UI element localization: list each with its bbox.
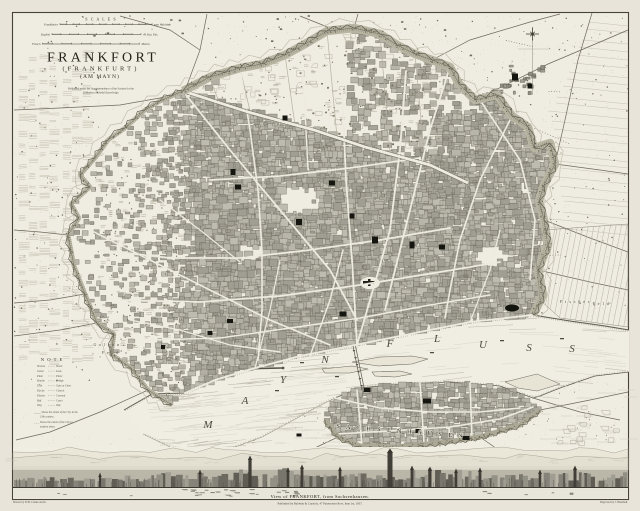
- svg-text:M: M: [202, 419, 213, 431]
- svg-text:S C A L E S: S C A L E S: [85, 17, 116, 22]
- svg-text:13th century.: 13th century.: [40, 416, 54, 419]
- svg-text:e: e: [598, 301, 600, 306]
- svg-text:S: S: [569, 343, 575, 355]
- svg-text:Gate or Door: Gate or Door: [56, 385, 72, 388]
- svg-text:Platz: Platz: [36, 375, 44, 378]
- svg-text:Way: Way: [56, 404, 61, 407]
- svg-text:Strasse: Strasse: [37, 365, 46, 368]
- svg-text:FRANKFORT: FRANKFORT: [47, 51, 159, 66]
- svg-text:u: u: [99, 342, 101, 347]
- svg-text:zum Wahlstab: zum Wahlstab: [153, 23, 171, 27]
- svg-text:N O T E: N O T E: [41, 357, 64, 362]
- svg-text:Frankfurter: Frankfurter: [43, 23, 59, 27]
- svg-text:Kirche: Kirche: [36, 390, 45, 393]
- svg-text:Published under the Superinten: Published under the Superintendence of t…: [68, 88, 135, 91]
- svg-text:e: e: [583, 299, 585, 304]
- svg-text:Weg: Weg: [37, 404, 42, 407]
- svg-text:S: S: [377, 426, 381, 433]
- svg-text:S: S: [336, 423, 340, 430]
- svg-text:49 Stat. Yds.: 49 Stat. Yds.: [143, 33, 158, 37]
- svg-text:English: English: [40, 33, 51, 37]
- svg-text:_ _ _ Shews the extent of the: _ _ _ Shews the extent of the City in: [33, 421, 73, 424]
- svg-text:Lane: Lane: [55, 370, 62, 373]
- svg-text:Bridge: Bridge: [56, 380, 64, 383]
- svg-text:U: U: [479, 339, 488, 351]
- svg-text:(FRANKFURT): (FRANKFURT): [62, 66, 139, 73]
- svg-text:E: E: [387, 427, 391, 434]
- svg-text:U: U: [427, 430, 432, 437]
- svg-text:N: N: [397, 428, 402, 435]
- svg-text:Engraved by J. Henshall.: Engraved by J. Henshall.: [600, 501, 628, 504]
- svg-text:Convent: Convent: [56, 394, 66, 397]
- svg-text:Place: Place: [55, 375, 63, 378]
- svg-text:Brucke: Brucke: [37, 380, 46, 383]
- svg-text:French: French: [31, 42, 41, 46]
- svg-text:Thor: Thor: [37, 385, 43, 388]
- svg-text:Drawn by W.B. Clarke Archt.: Drawn by W.B. Clarke Archt.: [13, 501, 46, 504]
- svg-text:e: e: [107, 350, 109, 355]
- svg-text:(AM MAYN): (AM MAYN): [80, 73, 120, 80]
- svg-text:H: H: [407, 429, 412, 436]
- svg-text:A: A: [346, 424, 351, 431]
- svg-text:N: N: [320, 354, 329, 366]
- svg-text:Gasse: Gasse: [37, 370, 45, 373]
- svg-text:n: n: [117, 342, 119, 347]
- svg-text:N: N: [458, 433, 463, 440]
- svg-text:C: C: [356, 425, 360, 432]
- svg-text:Court: Court: [56, 399, 63, 402]
- svg-text:Diffusion of Useful Knowledge.: Diffusion of Useful Knowledge.: [83, 92, 119, 95]
- svg-text:A: A: [417, 429, 422, 436]
- svg-text:Church: Church: [56, 390, 65, 393]
- svg-text:Metres: Metres: [141, 42, 151, 46]
- svg-text:F: F: [386, 338, 394, 350]
- svg-text:H: H: [366, 425, 371, 432]
- svg-text:L: L: [433, 333, 440, 345]
- svg-text:e: e: [113, 342, 115, 347]
- svg-text:S: S: [526, 342, 532, 354]
- svg-text:_____ Shews the extent of the: _____ Shews the extent of the City in th…: [33, 411, 79, 414]
- svg-text:c: c: [574, 299, 576, 304]
- svg-text:S: S: [438, 431, 442, 438]
- svg-text:E: E: [448, 432, 452, 439]
- svg-text:Street: Street: [56, 365, 63, 368]
- svg-text:g: g: [108, 342, 110, 347]
- svg-text:G: G: [94, 342, 97, 347]
- svg-text:modern times.: modern times.: [40, 426, 56, 429]
- svg-text:A: A: [241, 395, 249, 407]
- svg-text:Kloster: Kloster: [36, 394, 46, 397]
- svg-text:d: d: [116, 350, 118, 355]
